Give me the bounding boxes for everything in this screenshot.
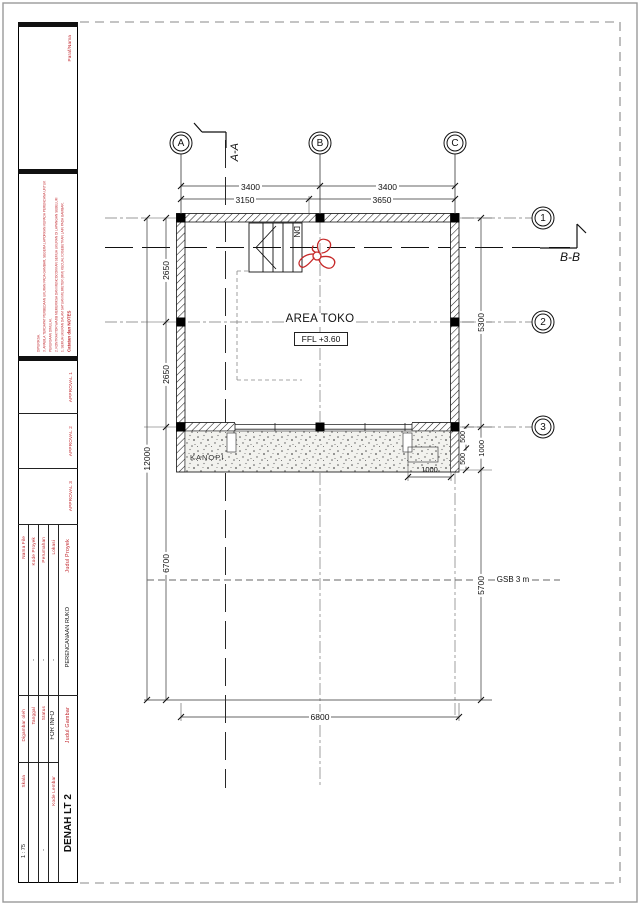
section-bb-text: B-B	[560, 250, 580, 264]
dim-right-lower: 5700	[475, 470, 487, 700]
dim-text: 3650	[371, 195, 394, 205]
label-text: Tanggal	[31, 707, 36, 725]
dim-text: 1000	[421, 465, 438, 474]
status-label: Status	[39, 698, 48, 728]
grid-bubble-3: 3	[532, 416, 554, 438]
judul-proyek-value: PERENCANAAN RUKO	[59, 585, 77, 690]
dim-left-12: 2650	[160, 218, 172, 322]
value-text: 1 : 75	[21, 844, 27, 858]
perumahan-value: -	[39, 650, 48, 670]
value-text: FOR INFO	[50, 711, 56, 740]
room-level-text: FFL +3.60	[302, 334, 341, 344]
grid-label-a: A	[178, 138, 185, 149]
paraf-text: Paraf/Nama	[67, 35, 72, 62]
approval-3: APPROVAL 3	[64, 476, 76, 516]
approval-2: APPROVAL 2	[64, 421, 76, 461]
grid-label-c: C	[451, 138, 458, 149]
grid-bubbles	[170, 132, 554, 438]
judul-proyek-label: Judul Proyek	[59, 527, 77, 585]
dim-right-500b: 500	[458, 446, 468, 472]
dim-top2-a: 3150	[181, 194, 309, 205]
skala-label: Skala	[19, 766, 28, 796]
grid-bubble-1: 1	[532, 207, 554, 229]
perumahan-label: Perumahan	[39, 527, 48, 573]
tanggal-label: Tanggal	[29, 698, 38, 734]
label-text: Nama File	[21, 536, 26, 559]
fan-symbol	[299, 239, 335, 268]
stair-dn-label: DN	[292, 226, 301, 238]
value-text: DENAH LT 2	[63, 794, 74, 852]
approval-text: APPROVAL 1	[68, 372, 73, 402]
status-value: FOR INFO	[48, 698, 58, 753]
dim-text: 3400	[376, 182, 399, 192]
dim-text: 500	[460, 429, 467, 445]
grid-label-b: B	[317, 138, 324, 149]
kode-proyek-label: Kode Proyek	[29, 527, 38, 575]
dim-text: 6700	[161, 552, 171, 575]
value-text: -	[41, 659, 47, 661]
value-text: -	[31, 659, 37, 661]
dim-top-ab: 3400	[181, 181, 320, 192]
dim-text: 1000	[477, 438, 486, 459]
judul-gambar-label: Judul Gambar	[59, 698, 77, 753]
label-text: Lokasi	[51, 540, 56, 554]
grid-bubble-2: 2	[532, 311, 554, 333]
notes-header: Catatan dan NOTES	[66, 181, 74, 352]
value-text: -	[51, 659, 57, 661]
notes-block: Catatan dan NOTES 1. SEMUA UKURAN DALAM …	[19, 177, 76, 354]
notes-line: 3. APABILA TERDAPAT PERBEDAAN UKURAN PAD…	[35, 179, 47, 352]
grid-bubble-a: A	[170, 132, 192, 154]
dim-left-total: 12000	[141, 218, 153, 700]
dim-right-canopy: 1000	[475, 427, 487, 470]
label-text: Kode Lembar	[51, 776, 56, 806]
label-text: Kode Proyek	[31, 537, 36, 566]
label-text: Status	[41, 706, 46, 720]
dim-left-23: 2650	[160, 322, 172, 427]
label-text: Perumahan	[41, 537, 46, 563]
label-text: Judul Proyek	[65, 539, 71, 573]
dim-left-lower: 6700	[160, 427, 172, 700]
dim-text: 3400	[239, 182, 262, 192]
dim-right-13: 5300	[475, 218, 487, 427]
dim-bottom-total: 6800	[181, 711, 459, 722]
dim-text: 5300	[476, 311, 486, 334]
dim-text: 500	[460, 451, 467, 467]
approval-text: APPROVAL 3	[68, 481, 73, 511]
titleblock-bar	[18, 356, 78, 361]
titleblock-divider	[18, 468, 78, 469]
canopy-label: KANOPI	[190, 453, 224, 462]
digambar-label: Digambar oleh	[19, 698, 28, 753]
dim-text: 2650	[161, 363, 171, 386]
kode-proyek-value: -	[29, 650, 38, 670]
skala-value: 1 : 75	[19, 828, 28, 873]
label-text: Judul Gambar	[65, 707, 71, 743]
label-text: Skala	[21, 775, 26, 788]
lokasi-label: Lokasi	[49, 527, 58, 567]
dim-text: 6800	[309, 712, 332, 722]
grid-label-3: 3	[540, 422, 546, 433]
dim-top2-b: 3650	[309, 194, 455, 205]
gsb-text: GSB 3 m	[495, 575, 531, 584]
nama-file-value	[19, 650, 28, 670]
paraf-label: Paraf/Nama	[63, 26, 76, 70]
section-aa-text: A-A	[229, 143, 241, 161]
room-name: AREA TOKO	[280, 312, 360, 326]
gsb-label: GSB 3 m	[485, 574, 541, 585]
dim-top-bc: 3400	[320, 181, 455, 192]
notes-line: 2. KONTRAKTOR WAJIB MEMERIKSA DAN MENCOC…	[47, 179, 59, 352]
value-text: PERENCANAAN RUKO	[65, 607, 71, 667]
kode-lembar-value: -	[39, 840, 48, 860]
grid-bubble-c: C	[444, 132, 466, 154]
notes-line: 1. SEMUA UKURAN DALAM SATUAN MILIMETER (…	[60, 179, 66, 352]
grid-label-2: 2	[540, 317, 546, 328]
lokasi-value: -	[49, 650, 58, 670]
section-aa-label: A-A	[228, 133, 242, 171]
label-text: Digambar oleh	[21, 709, 26, 741]
approval-1: APPROVAL 1	[64, 367, 76, 407]
dim-text: 12000	[142, 445, 152, 473]
dim-text: 2650	[161, 259, 171, 282]
room-level-box: FFL +3.60	[294, 332, 348, 346]
titleblock-bar	[18, 169, 78, 174]
dim-text: 3150	[234, 195, 257, 205]
nama-file-label: Nama File	[19, 527, 28, 567]
tanggal-value	[29, 780, 38, 800]
grid-label-1: 1	[540, 213, 546, 224]
approval-text: APPROVAL 2	[68, 426, 73, 456]
grid-bubble-b: B	[309, 132, 331, 154]
section-bb-label: B-B	[552, 250, 588, 264]
titleblock-divider	[18, 413, 78, 414]
room-name-text: AREA TOKO	[284, 313, 357, 325]
value-text: -	[41, 849, 47, 851]
dim-canopy-width: 1000	[408, 464, 451, 474]
kode-lembar-label: Kode Lembar	[48, 766, 58, 816]
drawing-sheet: A B C 1 2 3 A-A B-B 3400 3400 3150 3650 …	[0, 0, 640, 906]
judul-gambar-value: DENAH LT 2	[58, 766, 78, 880]
